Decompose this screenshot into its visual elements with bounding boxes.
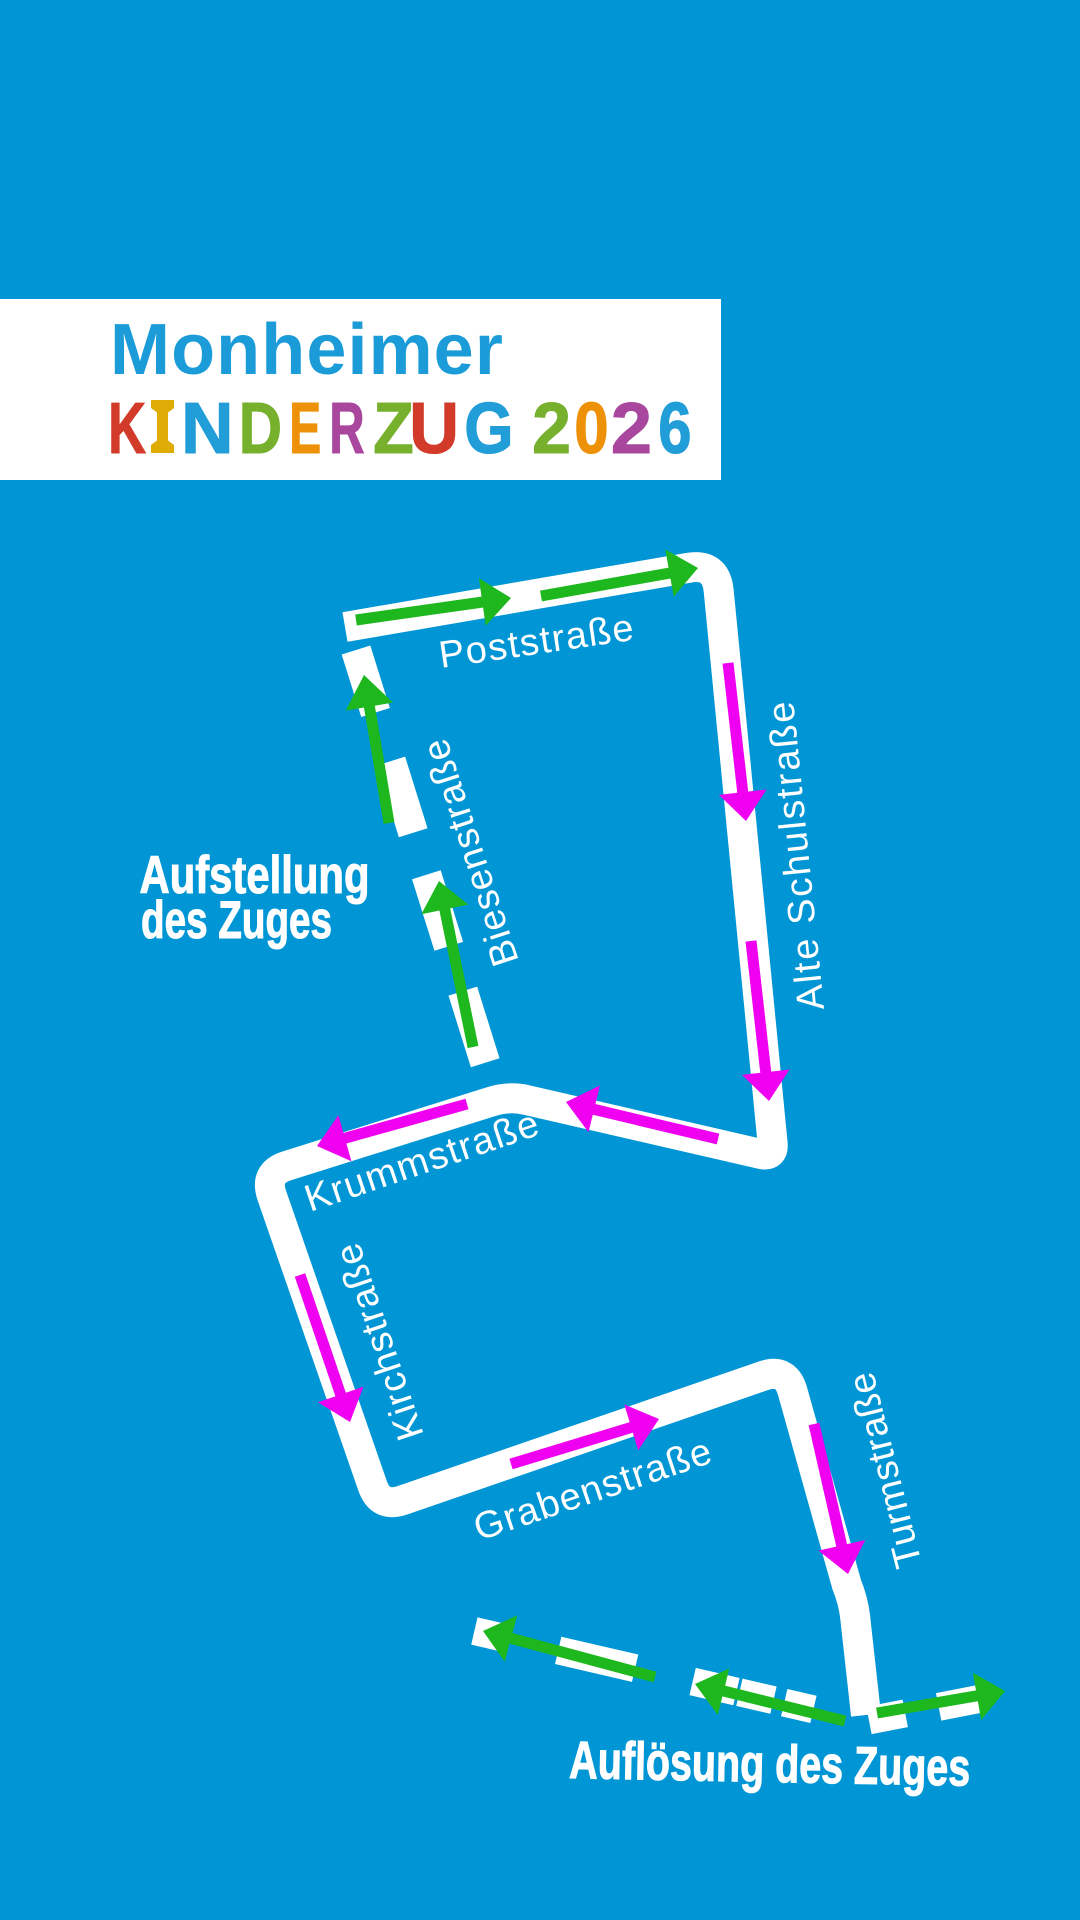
svg-text:E: E [289, 389, 321, 469]
svg-text:G: G [464, 389, 513, 469]
svg-text:2: 2 [611, 389, 652, 469]
svg-text:R: R [329, 389, 364, 469]
svg-text:N: N [181, 389, 234, 469]
svg-text:K: K [108, 389, 146, 469]
svg-text:Monheimer: Monheimer [110, 310, 504, 390]
svg-text:0: 0 [574, 389, 608, 469]
svg-text:6: 6 [658, 389, 691, 469]
svg-text:2: 2 [532, 389, 571, 469]
svg-text:U: U [409, 389, 459, 469]
svg-text:Z: Z [373, 389, 414, 469]
svg-text:Auflösung des Zuges: Auflösung des Zuges [569, 1731, 971, 1798]
svg-text:des Zuges: des Zuges [141, 891, 332, 950]
svg-text:D: D [239, 389, 282, 469]
